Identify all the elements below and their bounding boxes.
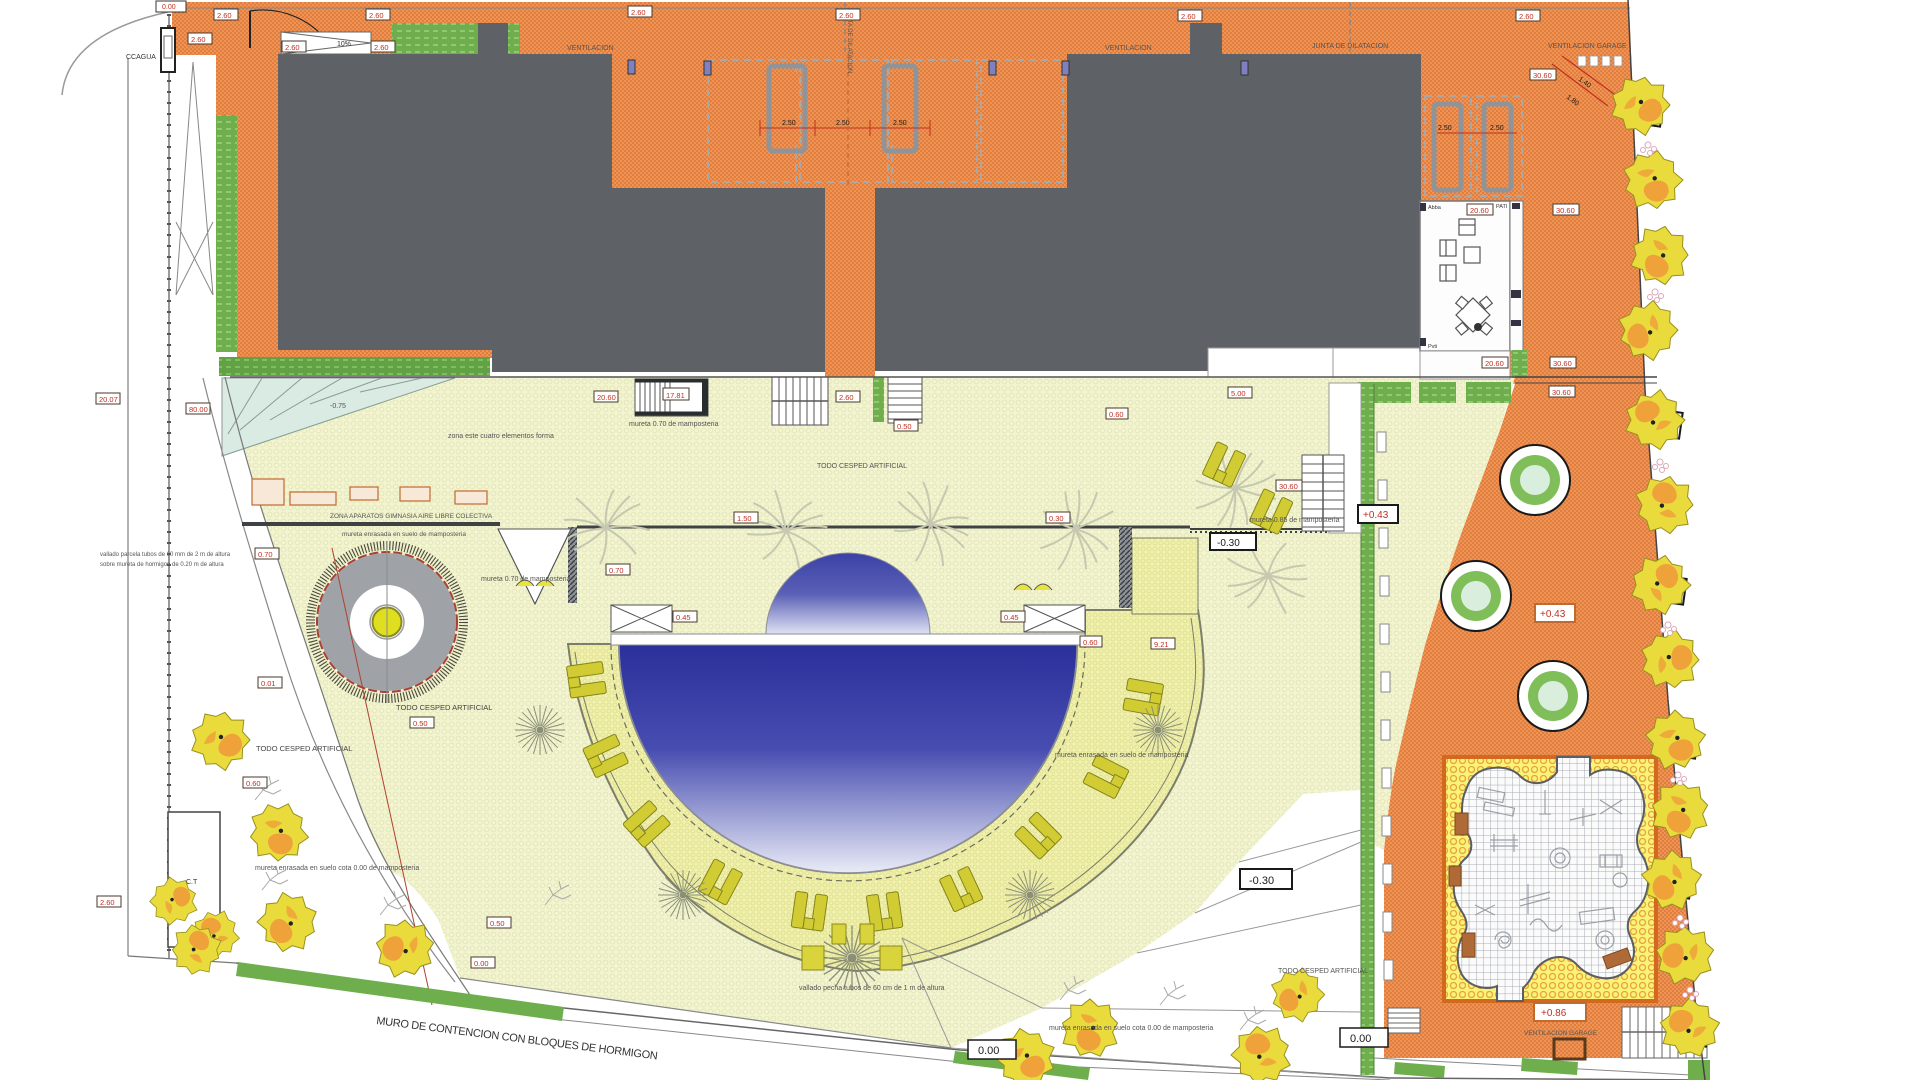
svg-text:2.60: 2.60 bbox=[839, 393, 854, 402]
svg-text:TODO CESPED ARTIFICIAL: TODO CESPED ARTIFICIAL bbox=[396, 703, 492, 712]
svg-text:2.60: 2.60 bbox=[374, 43, 389, 52]
svg-text:TODO CESPED ARTIFICIAL: TODO CESPED ARTIFICIAL bbox=[817, 463, 907, 470]
svg-text:vallado parcela tubos de 60 mm: vallado parcela tubos de 60 mm de 2 m de… bbox=[100, 552, 231, 558]
svg-text:0.60: 0.60 bbox=[246, 779, 261, 788]
svg-text:vallado pecha tubos de 60 cm d: vallado pecha tubos de 60 cm de 1 m de a… bbox=[799, 985, 945, 992]
svg-text:2.60: 2.60 bbox=[1181, 12, 1196, 21]
svg-text:Pvti: Pvti bbox=[1428, 344, 1437, 350]
svg-text:30.60: 30.60 bbox=[1279, 482, 1298, 491]
svg-text:17.81: 17.81 bbox=[666, 391, 685, 400]
svg-text:9.21: 9.21 bbox=[1154, 640, 1169, 649]
svg-text:zona este cuatro elementos for: zona este cuatro elementos forma bbox=[448, 433, 554, 440]
svg-text:2.60: 2.60 bbox=[839, 11, 854, 20]
svg-text:20.07: 20.07 bbox=[99, 395, 118, 404]
svg-text:TODO CESPED ARTIFICIAL: TODO CESPED ARTIFICIAL bbox=[1278, 968, 1368, 975]
svg-text:PATI: PATI bbox=[1496, 204, 1508, 210]
svg-text:2.60: 2.60 bbox=[100, 898, 115, 907]
svg-text:CCAGUA: CCAGUA bbox=[126, 54, 156, 61]
svg-text:5.00: 5.00 bbox=[1231, 389, 1246, 398]
svg-text:20.60: 20.60 bbox=[1470, 206, 1489, 215]
svg-text:2.60: 2.60 bbox=[285, 43, 300, 52]
svg-text:1.50: 1.50 bbox=[737, 514, 752, 523]
svg-text:Abba: Abba bbox=[1428, 205, 1442, 211]
svg-text:0.01: 0.01 bbox=[261, 679, 276, 688]
svg-text:0.45: 0.45 bbox=[1004, 613, 1019, 622]
svg-text:2.50: 2.50 bbox=[1490, 125, 1504, 132]
svg-text:+0.86: +0.86 bbox=[1541, 1008, 1567, 1019]
svg-text:0.70: 0.70 bbox=[609, 566, 624, 575]
svg-text:mureta 0.70 de mamposteria: mureta 0.70 de mamposteria bbox=[629, 421, 719, 428]
svg-text:30.60: 30.60 bbox=[1553, 359, 1572, 368]
svg-text:80.00: 80.00 bbox=[189, 405, 208, 414]
svg-text:C.T: C.T bbox=[186, 879, 198, 886]
svg-text:0.30: 0.30 bbox=[1049, 514, 1064, 523]
svg-text:JUNTA DE DILATACION: JUNTA DE DILATACION bbox=[1312, 43, 1388, 50]
svg-text:0.00: 0.00 bbox=[474, 959, 489, 968]
svg-text:2.60: 2.60 bbox=[217, 11, 232, 20]
svg-text:2.60: 2.60 bbox=[1519, 12, 1534, 21]
svg-text:+0.43: +0.43 bbox=[1540, 609, 1566, 620]
svg-text:0.00: 0.00 bbox=[162, 4, 176, 11]
svg-text:VENTILACION: VENTILACION bbox=[1105, 45, 1152, 52]
svg-text:2.50: 2.50 bbox=[893, 120, 907, 127]
svg-text:2.60: 2.60 bbox=[191, 35, 206, 44]
svg-text:TODO CESPED ARTIFICIAL: TODO CESPED ARTIFICIAL bbox=[256, 744, 352, 753]
svg-text:0.45: 0.45 bbox=[676, 613, 691, 622]
svg-text:ZONA APARATOS GIMNASIA AIRE LI: ZONA APARATOS GIMNASIA AIRE LIBRE COLECT… bbox=[330, 513, 493, 520]
svg-text:+0.43: +0.43 bbox=[1363, 510, 1389, 521]
svg-text:0.00: 0.00 bbox=[978, 1045, 999, 1057]
svg-text:-0.30: -0.30 bbox=[1217, 538, 1240, 549]
svg-text:30.60: 30.60 bbox=[1552, 388, 1571, 397]
svg-text:0.70: 0.70 bbox=[258, 550, 273, 559]
svg-text:30.60: 30.60 bbox=[1533, 71, 1552, 80]
svg-text:20.60: 20.60 bbox=[1485, 359, 1504, 368]
svg-text:VENTILACION: VENTILACION bbox=[567, 45, 614, 52]
svg-text:2.60: 2.60 bbox=[631, 8, 646, 17]
svg-text:0.50: 0.50 bbox=[413, 719, 428, 728]
svg-text:2.60: 2.60 bbox=[369, 11, 384, 20]
svg-text:mureta 0.85 de mamposteria: mureta 0.85 de mamposteria bbox=[1250, 517, 1340, 524]
svg-text:2.50: 2.50 bbox=[1438, 125, 1452, 132]
svg-text:VENTILACION GARAGE: VENTILACION GARAGE bbox=[1524, 1030, 1598, 1037]
svg-text:20.60: 20.60 bbox=[597, 393, 616, 402]
svg-text:10%: 10% bbox=[337, 41, 351, 48]
svg-text:0.60: 0.60 bbox=[1109, 410, 1124, 419]
svg-text:2.50: 2.50 bbox=[782, 120, 796, 127]
svg-text:-0.30: -0.30 bbox=[1249, 875, 1274, 887]
svg-text:-0.75: -0.75 bbox=[330, 403, 346, 410]
svg-text:VENTILACION GARAGE: VENTILACION GARAGE bbox=[1548, 43, 1627, 50]
svg-text:mureta enrasada en suelo de ma: mureta enrasada en suelo de mamposteria bbox=[342, 531, 466, 538]
svg-text:mureta enrasada en suelo de ma: mureta enrasada en suelo de mamposteria bbox=[1055, 752, 1189, 759]
svg-text:0.50: 0.50 bbox=[897, 422, 912, 431]
svg-text:0.60: 0.60 bbox=[1083, 638, 1098, 647]
svg-text:30.60: 30.60 bbox=[1556, 206, 1575, 215]
svg-text:0.50: 0.50 bbox=[490, 919, 505, 928]
svg-text:mureta 0.70 de mamposteria: mureta 0.70 de mamposteria bbox=[481, 576, 571, 583]
svg-text:mureta enrasada en suelo cota: mureta enrasada en suelo cota 0.00 de ma… bbox=[1049, 1025, 1213, 1032]
svg-text:sobre mureta de hormigon de 0.: sobre mureta de hormigon de 0.20 m de al… bbox=[100, 562, 224, 568]
svg-text:0.00: 0.00 bbox=[1350, 1033, 1371, 1045]
svg-text:mureta enrasada en suelo cota: mureta enrasada en suelo cota 0.00 de ma… bbox=[255, 865, 419, 872]
